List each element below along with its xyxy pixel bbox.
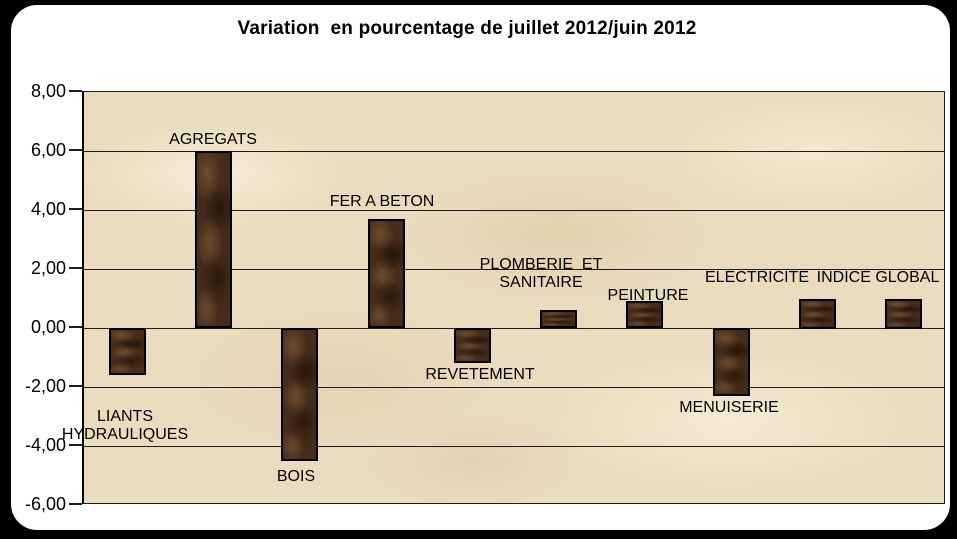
category-label-liants-hydrauliques: LIANTS HYDRAULIQUES bbox=[62, 408, 188, 444]
y-axis-tick bbox=[69, 385, 82, 387]
category-label-revetement: REVETEMENT bbox=[425, 366, 534, 384]
category-label-agregats: AGREGATS bbox=[169, 131, 257, 149]
y-axis-tick bbox=[69, 444, 82, 446]
y-axis-tick bbox=[69, 326, 82, 328]
category-label-indice-global: INDICE GLOBAL bbox=[817, 269, 940, 287]
y-axis-tick bbox=[69, 208, 82, 210]
bar-bois bbox=[281, 328, 318, 461]
bar-revetement bbox=[454, 328, 491, 363]
y-axis-tick bbox=[69, 149, 82, 151]
y-axis-tick-label: 4,00 bbox=[0, 198, 66, 220]
bar-liants-hydrauliques bbox=[109, 328, 146, 375]
category-label-fer-a-beton: FER A BETON bbox=[330, 193, 435, 211]
y-axis-tick-label: -2,00 bbox=[0, 375, 66, 397]
bar-plomberie-et-sanitaire bbox=[540, 310, 577, 328]
y-axis-tick-label: 6,00 bbox=[0, 139, 66, 161]
bar-agregats bbox=[195, 151, 232, 328]
plot-area bbox=[82, 91, 945, 504]
bar-indice-global bbox=[885, 299, 922, 329]
chart-title: Variation en pourcentage de juillet 2012… bbox=[238, 18, 697, 40]
category-label-bois: BOIS bbox=[277, 468, 315, 486]
y-axis-tick-label: 8,00 bbox=[0, 80, 66, 102]
bar-peinture bbox=[626, 301, 663, 328]
gridline bbox=[84, 387, 944, 388]
y-axis-tick-label: 0,00 bbox=[0, 316, 66, 338]
category-label-menuiserie: MENUISERIE bbox=[679, 399, 779, 417]
page-background: Variation en pourcentage de juillet 2012… bbox=[0, 0, 957, 539]
y-axis-tick-label: 2,00 bbox=[0, 257, 66, 279]
y-axis-tick-label: -6,00 bbox=[0, 493, 66, 515]
category-label-plomberie-et-sanitaire: PLOMBERIE ET SANITAIRE bbox=[480, 256, 603, 292]
bar-menuiserie bbox=[713, 328, 750, 396]
bar-electricite bbox=[799, 299, 836, 329]
category-label-electricite: ELECTRICITE bbox=[705, 269, 809, 287]
category-label-peinture: PEINTURE bbox=[608, 287, 689, 305]
y-axis-tick-label: -4,00 bbox=[0, 434, 66, 456]
gridline bbox=[84, 446, 944, 447]
bar-fer-a-beton bbox=[368, 219, 405, 328]
y-axis-tick bbox=[69, 267, 82, 269]
y-axis-tick bbox=[69, 90, 82, 92]
y-axis-tick bbox=[69, 503, 82, 505]
